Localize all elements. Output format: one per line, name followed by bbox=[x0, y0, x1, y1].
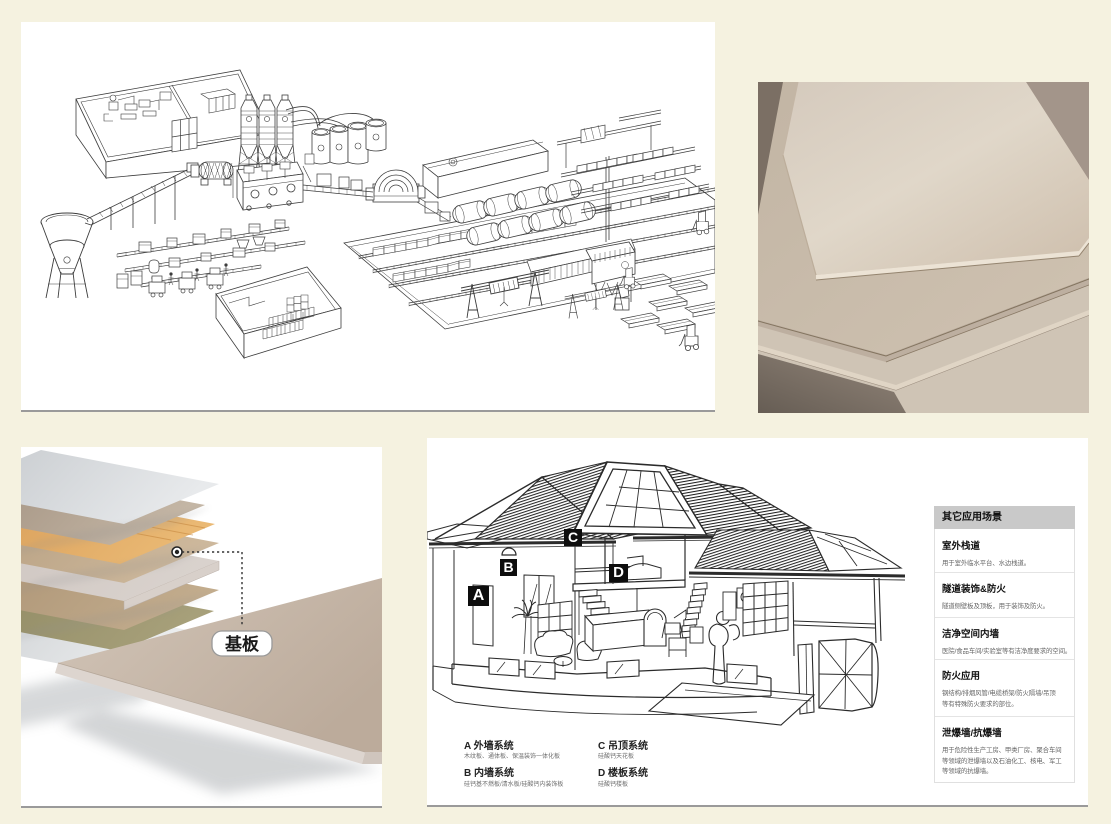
svg-text:基板: 基板 bbox=[224, 634, 260, 654]
